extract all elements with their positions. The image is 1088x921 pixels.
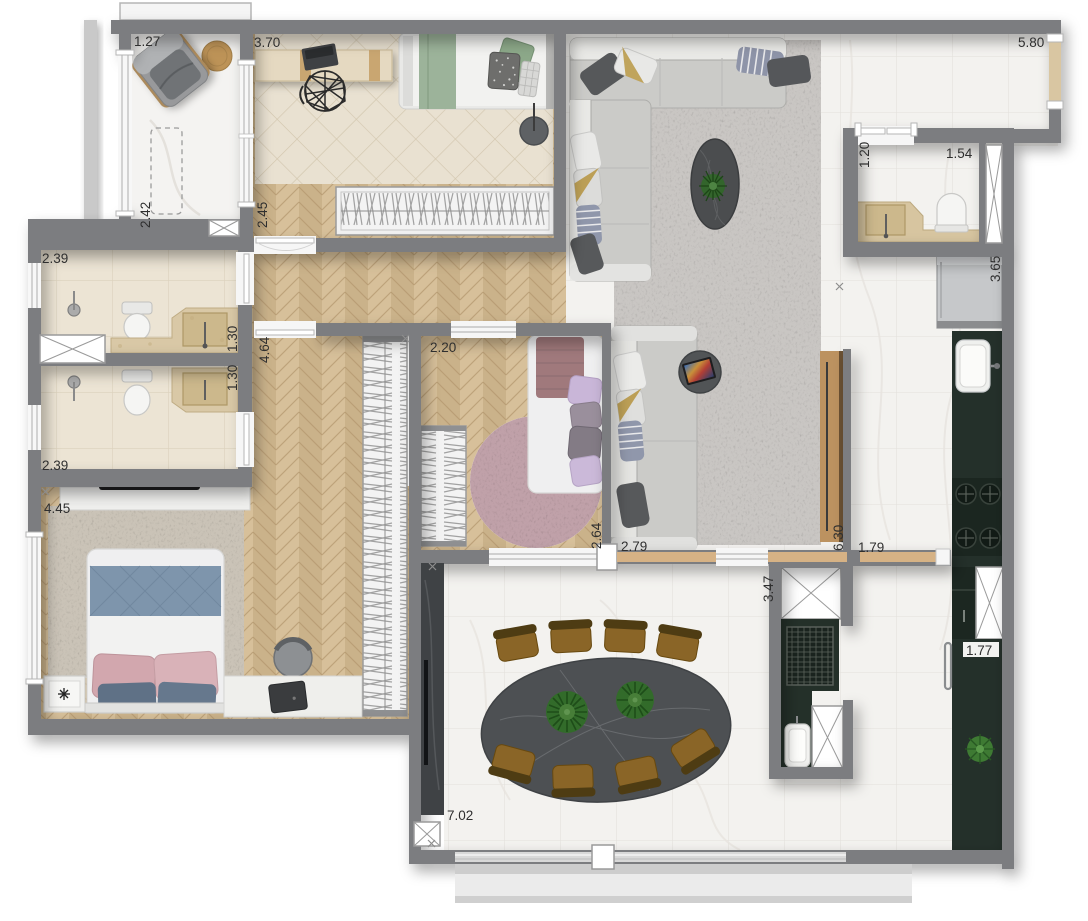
svg-text:2.39: 2.39 — [42, 251, 68, 266]
svg-text:1.54: 1.54 — [946, 146, 973, 161]
svg-text:1.30: 1.30 — [225, 365, 240, 391]
svg-text:1.27: 1.27 — [134, 34, 160, 49]
svg-text:3.65: 3.65 — [988, 256, 1003, 282]
svg-text:1.77: 1.77 — [966, 643, 992, 658]
svg-text:2.39: 2.39 — [42, 458, 68, 473]
svg-text:7.02: 7.02 — [447, 808, 473, 823]
svg-text:5.80: 5.80 — [1018, 35, 1044, 50]
svg-text:1.79: 1.79 — [858, 540, 884, 555]
svg-text:4.45: 4.45 — [44, 501, 70, 516]
svg-text:3.70: 3.70 — [254, 35, 280, 50]
svg-text:2.20: 2.20 — [430, 340, 456, 355]
svg-text:1.30: 1.30 — [225, 326, 240, 352]
svg-text:2.79: 2.79 — [621, 539, 647, 554]
svg-text:4.64: 4.64 — [257, 336, 272, 363]
svg-text:2.64: 2.64 — [589, 522, 604, 549]
svg-text:6.30: 6.30 — [831, 525, 846, 551]
svg-text:2.45: 2.45 — [255, 202, 270, 228]
svg-text:2.42: 2.42 — [138, 202, 153, 228]
svg-text:1.20: 1.20 — [857, 142, 872, 168]
svg-text:3.47: 3.47 — [761, 576, 776, 602]
